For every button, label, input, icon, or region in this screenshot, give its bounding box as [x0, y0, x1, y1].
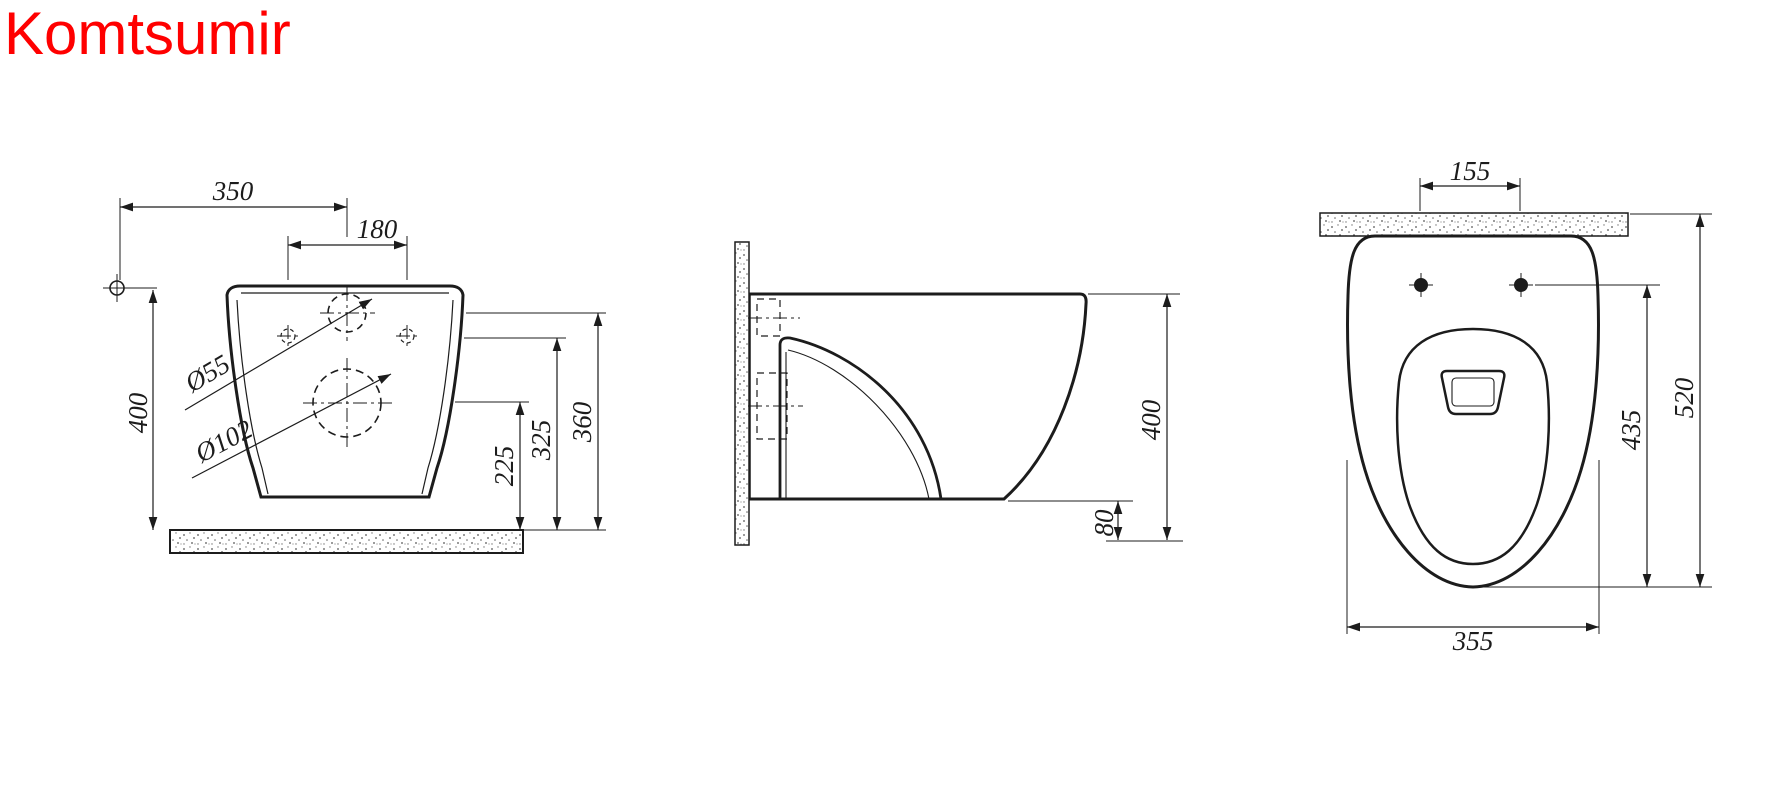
side-dim-80: 80	[1089, 509, 1119, 537]
side-bowl-inner	[786, 350, 929, 499]
top-bolt-cross-lines	[1409, 273, 1533, 297]
side-bowl-outer	[780, 338, 941, 499]
top-wall-strip	[1320, 213, 1628, 236]
side-center-lines	[748, 318, 803, 406]
side-wall-strip	[735, 242, 749, 545]
drawing-canvas: Komtsumir 350 180	[0, 0, 1785, 791]
front-view: 350 180 400 360 325 225 Ø55 Ø102	[103, 176, 606, 553]
front-label-inlet-dia: Ø55	[179, 348, 235, 398]
front-center-lines	[277, 287, 418, 449]
top-dim-520: 520	[1669, 377, 1699, 418]
brand-logo: Komtsumir	[4, 0, 291, 67]
front-body-inner-lines	[237, 293, 453, 494]
front-body-outline	[227, 286, 463, 497]
front-dim-360: 360	[567, 401, 597, 443]
top-seat-opening	[1397, 329, 1549, 564]
front-datum-cross	[103, 274, 157, 302]
front-dim-225: 225	[489, 446, 519, 487]
front-label-outlet-dia: Ø102	[189, 414, 257, 469]
technical-drawing-page: Komtsumir 350 180	[0, 0, 1785, 791]
top-dim-155: 155	[1450, 156, 1491, 186]
side-dim-400: 400	[1136, 399, 1166, 440]
front-dim-180: 180	[357, 214, 398, 244]
side-body-outline	[749, 294, 1086, 499]
top-dim-435: 435	[1616, 410, 1646, 451]
top-view: 155 435 520 355	[1320, 156, 1712, 656]
front-dim-325: 325	[526, 420, 556, 462]
top-dim-355: 355	[1452, 626, 1494, 656]
front-dim-350: 350	[212, 176, 254, 206]
top-flush-spud-inner	[1452, 378, 1494, 406]
side-view: 400 80	[735, 242, 1183, 545]
front-floor-strip	[170, 530, 523, 553]
top-extension-lines	[1347, 178, 1712, 634]
front-dim-400: 400	[123, 392, 153, 433]
top-body-outline	[1348, 236, 1599, 587]
